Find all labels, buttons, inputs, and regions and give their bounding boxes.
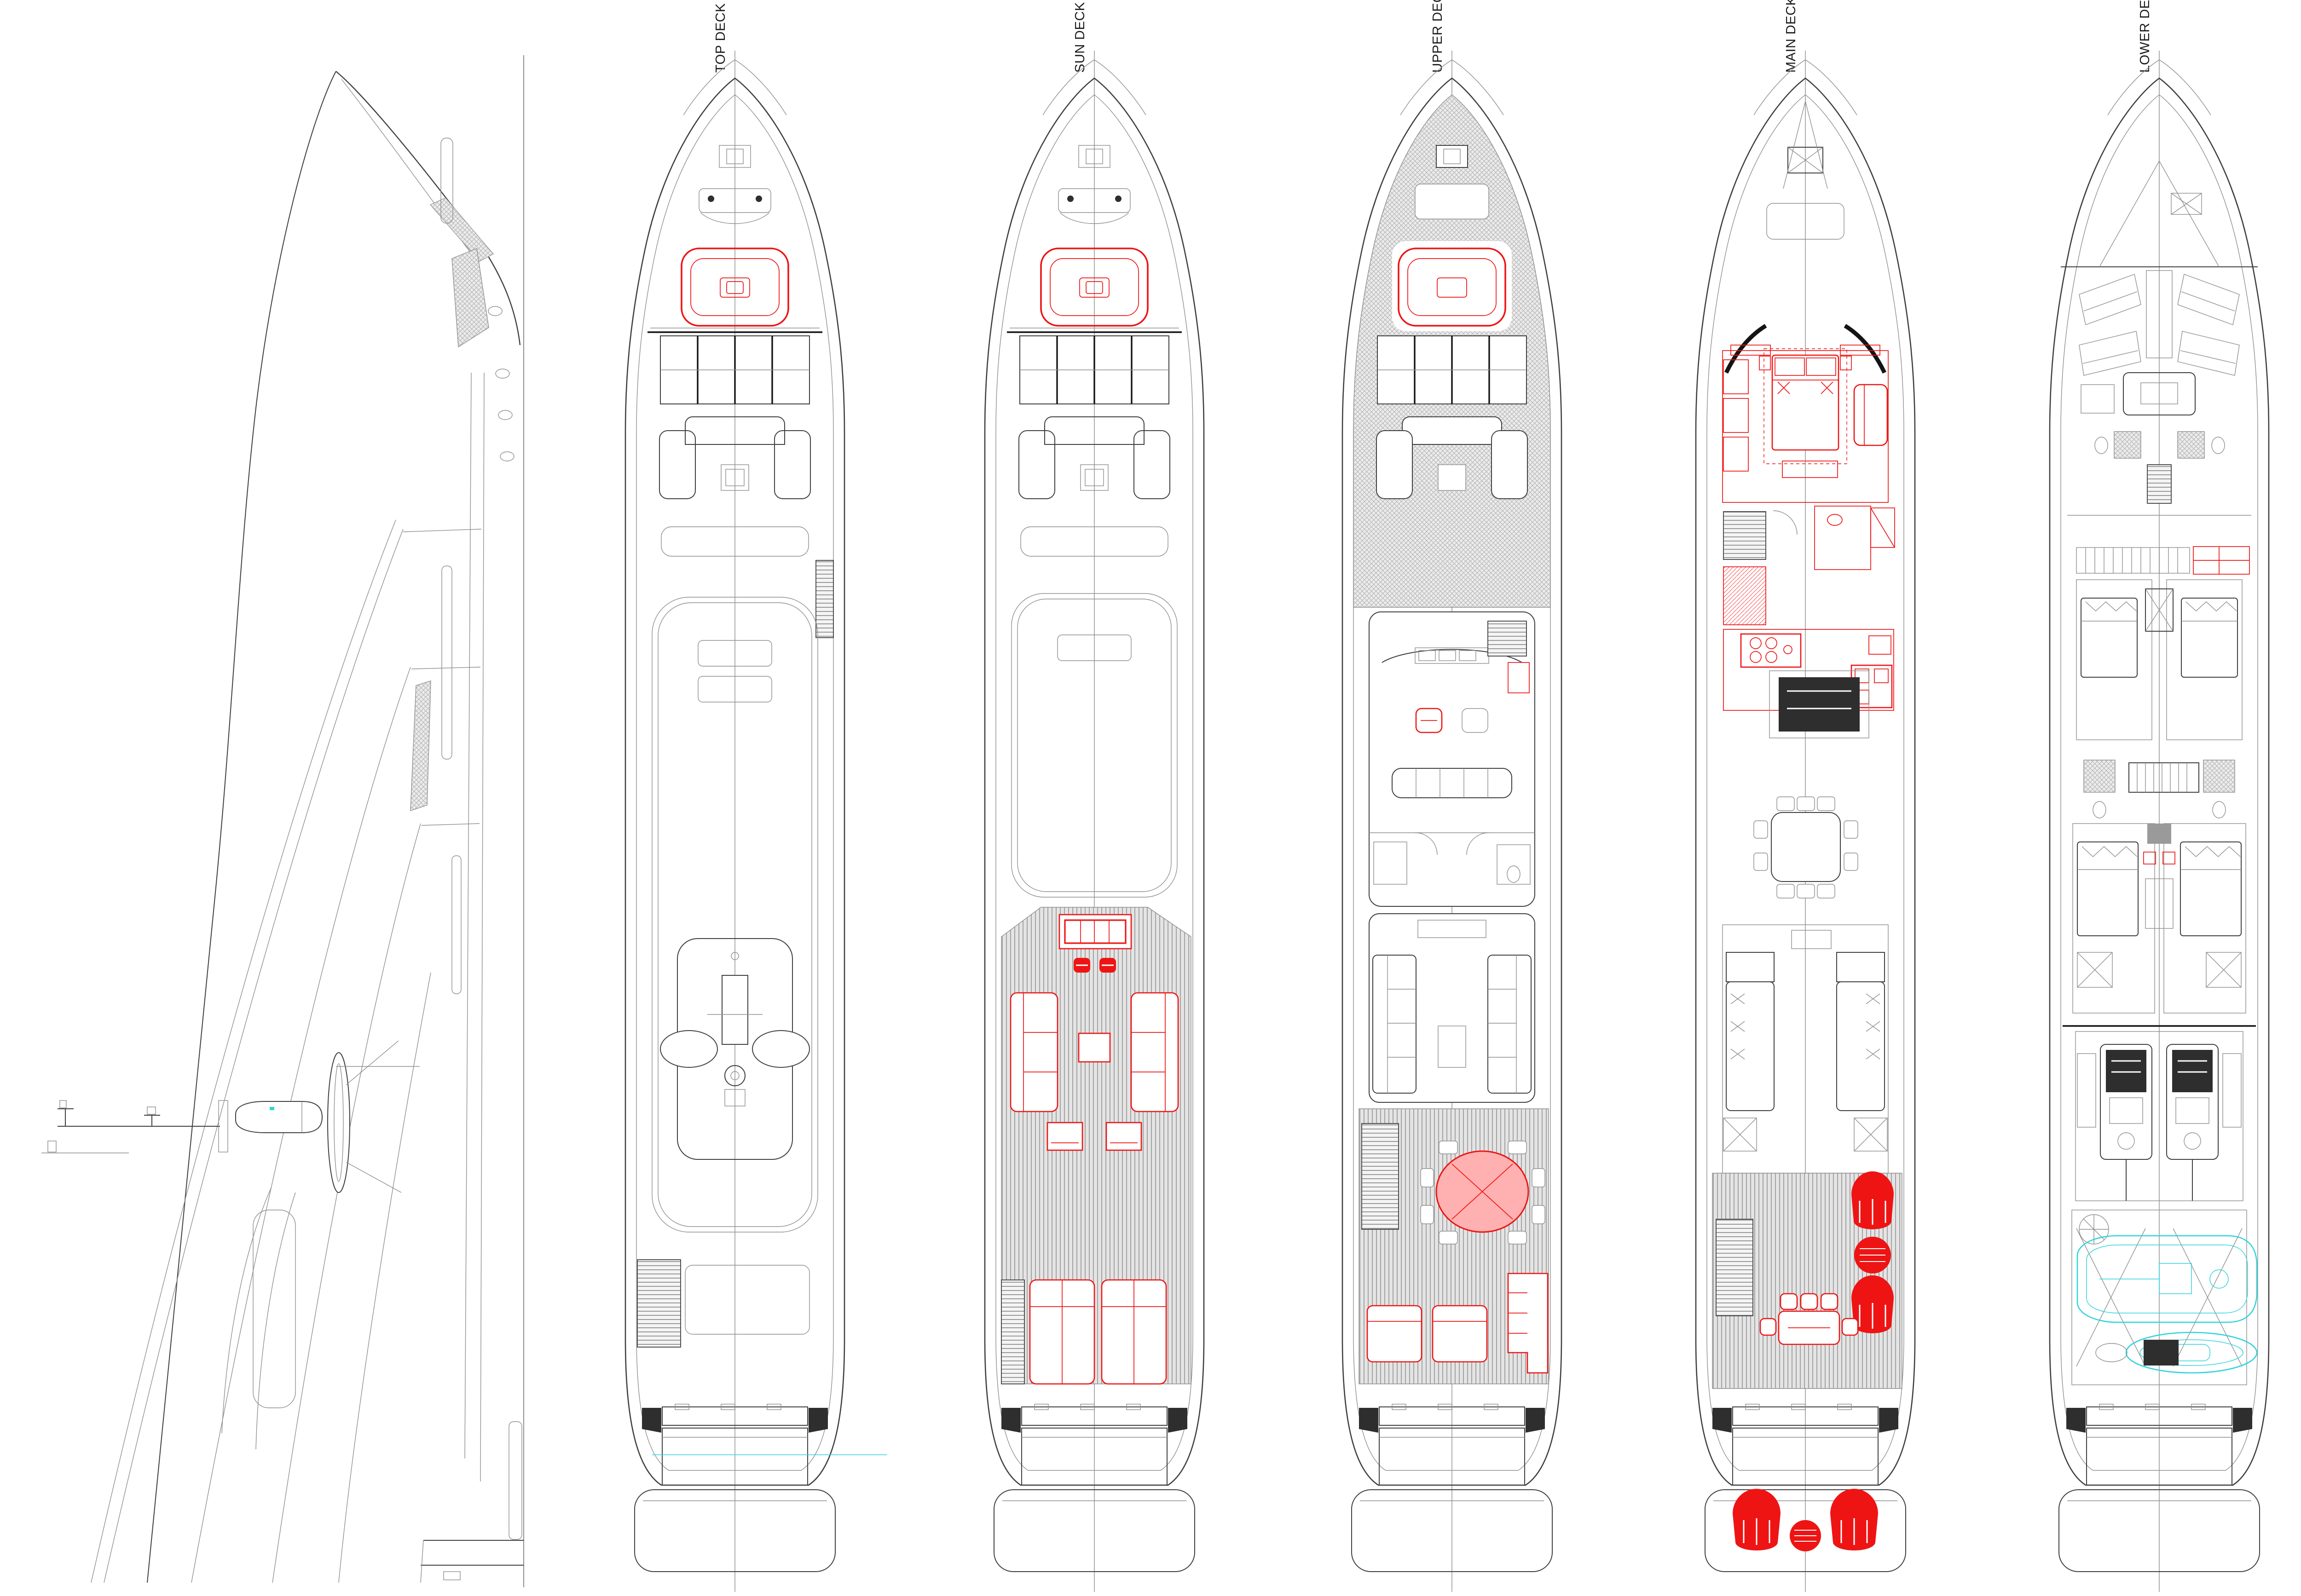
- sofa: [1011, 993, 1058, 1112]
- wardrobe: [1723, 437, 1748, 471]
- wheelhouse: [1369, 612, 1535, 906]
- wardrobe: [1723, 360, 1748, 394]
- egg-chair: [1851, 1171, 1894, 1229]
- tender: [2077, 1236, 2257, 1322]
- stairs: [1488, 621, 1526, 656]
- engine: [2100, 1044, 2152, 1201]
- profile-stern: [421, 1422, 524, 1583]
- main-aft-deck: [1712, 1171, 1902, 1389]
- satcom-dome-icon: [660, 1031, 717, 1067]
- guest-bed: [2077, 842, 2138, 936]
- stairs: [2147, 465, 2171, 503]
- galley-appliances: [1779, 677, 1860, 732]
- crew-shower: [2114, 432, 2141, 458]
- ga-drawing-sheet: TOP DECK: [0, 0, 2301, 1596]
- profile-hull: [147, 71, 520, 1583]
- shower: [2203, 760, 2235, 792]
- staircase: [2129, 763, 2199, 792]
- top-deck-midship: [652, 527, 833, 1232]
- stairs: [1001, 1280, 1024, 1384]
- master-bed: [1772, 355, 1838, 450]
- crew-shower: [2178, 432, 2204, 458]
- nightstand: [1759, 356, 1770, 370]
- upper-aft-deck: [1359, 1109, 1549, 1384]
- sun-deck-plan: [942, 51, 1246, 1594]
- satcom-dome-icon: [752, 1031, 809, 1067]
- guest-bed: [2180, 842, 2241, 936]
- guest-bed: [2181, 598, 2237, 677]
- propeller-icon: [2096, 1343, 2127, 1362]
- sink: [1869, 636, 1891, 654]
- winch: [2144, 1340, 2179, 1366]
- upper-deck-plan: [1300, 51, 1604, 1594]
- dining-area: [1754, 797, 1858, 898]
- sky-lounge: [1369, 914, 1535, 1102]
- sofa: [1131, 993, 1178, 1112]
- tender-garage: [2072, 1210, 2257, 1385]
- main-deck-plan: [1653, 51, 1957, 1594]
- stairs: [1723, 512, 1766, 559]
- sofa: [1837, 952, 1887, 1151]
- deck-chair: [1367, 1306, 1422, 1362]
- shower: [1723, 567, 1766, 625]
- wardrobe: [1723, 398, 1748, 432]
- stool: [2144, 852, 2156, 864]
- sunpads: [1377, 336, 1526, 404]
- stairs: [1716, 1219, 1753, 1316]
- master-sofa: [1854, 385, 1887, 445]
- stool: [2163, 852, 2175, 864]
- deck-chair: [1433, 1306, 1487, 1362]
- sun-lounger: [1030, 1280, 1094, 1384]
- side-profile-drawing: [14, 51, 534, 1592]
- shower: [2084, 760, 2115, 792]
- copilot-chair: [1462, 709, 1488, 732]
- stairs: [637, 1260, 681, 1347]
- coffee-table: [1079, 1033, 1110, 1062]
- galley: [1723, 629, 1894, 738]
- stairs: [1362, 1124, 1399, 1229]
- profile-superstructure: [91, 520, 481, 1583]
- engine: [2167, 1044, 2218, 1201]
- sofa: [1723, 952, 1774, 1151]
- guest-bed: [2081, 598, 2137, 677]
- master-bathroom: [1723, 506, 1895, 625]
- mast-icon: [722, 975, 748, 1044]
- lower-deck-plan: [2007, 51, 2301, 1594]
- side-table: [1047, 1123, 1082, 1150]
- side-profile-view: [14, 51, 534, 1594]
- sun-lounger: [1102, 1280, 1166, 1384]
- side-table: [1106, 1123, 1141, 1150]
- sun-deck-lounge: [1001, 907, 1191, 1384]
- dining-table: [1771, 812, 1840, 882]
- top-deck-plan: [583, 51, 887, 1594]
- guest-cabins-fwd: [2076, 547, 2249, 740]
- nightstand: [1840, 356, 1851, 370]
- egg-chair: [1854, 1237, 1891, 1273]
